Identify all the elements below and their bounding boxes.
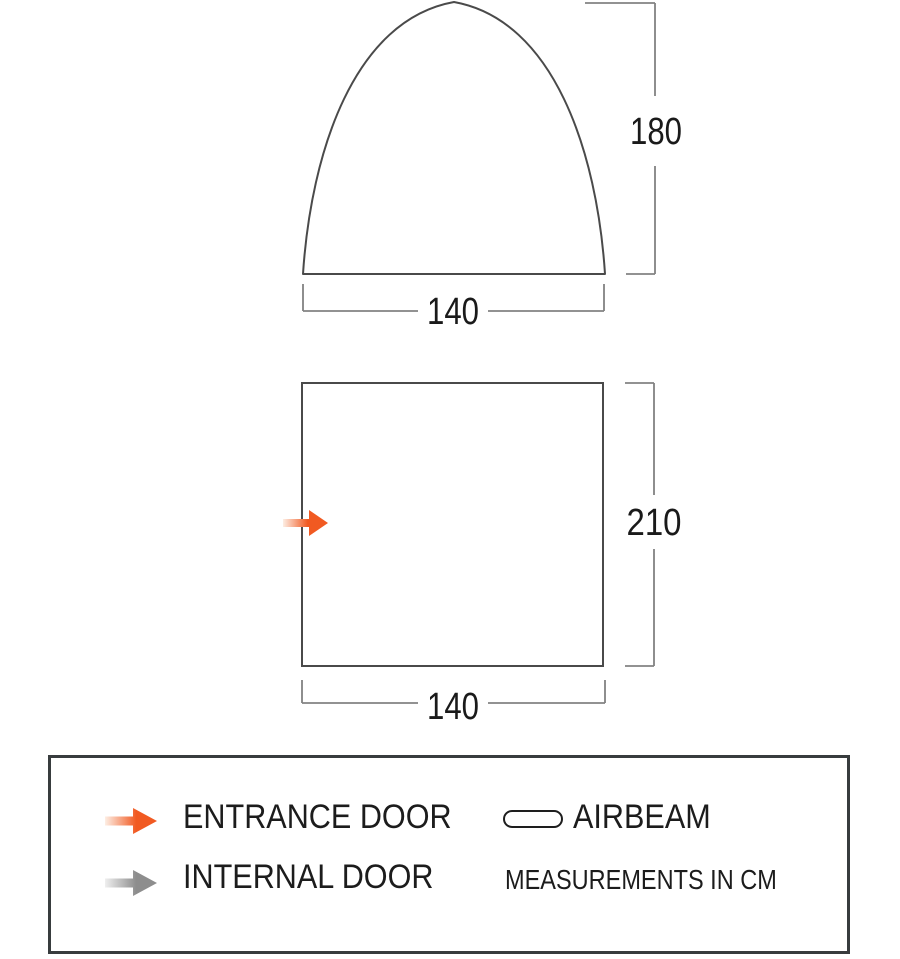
airbeam-legend-item: AIRBEAM	[573, 800, 726, 834]
entrance-door-legend-item: ENTRANCE DOOR	[183, 800, 481, 834]
airbeam-label: AIRBEAM	[573, 800, 711, 834]
tent-front-dome-outline	[303, 2, 605, 274]
diagram-canvas: 180 140 210 140	[0, 0, 900, 745]
measurements-note-label: MEASUREMENTS IN CM	[505, 866, 777, 894]
front-width-dimension: 140	[303, 284, 604, 333]
front-width-value: 140	[427, 291, 479, 333]
internal-door-arrow-icon	[105, 870, 157, 896]
floor-width-value: 140	[427, 686, 479, 728]
internal-door-label: INTERNAL DOOR	[183, 860, 433, 894]
entrance-door-label: ENTRANCE DOOR	[183, 800, 452, 834]
legend-box: ENTRANCE DOOR AIRBEAM INTERNAL DOOR MEAS…	[48, 755, 850, 954]
floor-depth-value: 210	[627, 502, 682, 544]
airbeam-icon	[503, 810, 563, 828]
measurements-note-item: MEASUREMENTS IN CM	[505, 866, 829, 894]
tent-dimension-diagram-page: 180 140 210 140	[0, 0, 900, 959]
floorplan-outline	[302, 383, 603, 666]
floor-depth-dimension: 210	[625, 383, 682, 666]
internal-door-legend-item: INTERNAL DOOR	[183, 860, 461, 894]
front-height-value: 180	[630, 111, 682, 153]
entrance-door-arrow-icon	[105, 808, 157, 834]
floor-width-dimension: 140	[302, 680, 605, 728]
